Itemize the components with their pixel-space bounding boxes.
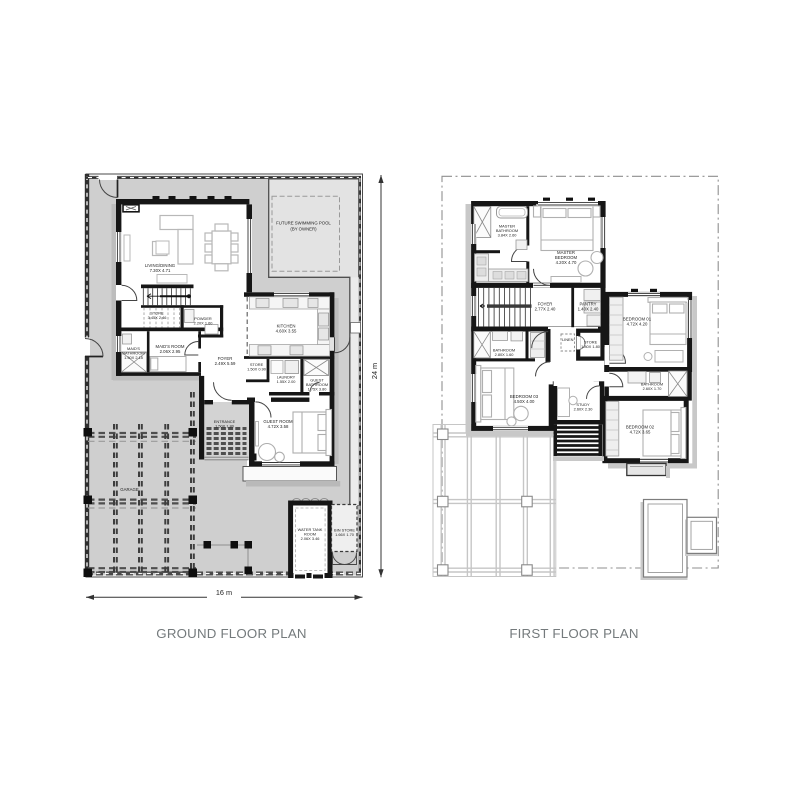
svg-text:4.72X 3.58: 4.72X 3.58 — [268, 424, 289, 429]
svg-text:1.40X 2.40: 1.40X 2.40 — [578, 307, 599, 312]
svg-text:FUTURE SWIMMING POOL: FUTURE SWIMMING POOL — [276, 221, 331, 226]
svg-text:LINEN: LINEN — [562, 337, 574, 342]
svg-text:GARAGE: GARAGE — [120, 487, 139, 492]
svg-text:GROUND FLOOR PLAN: GROUND FLOOR PLAN — [156, 626, 306, 641]
svg-text:4.72X 3.65: 4.72X 3.65 — [630, 430, 651, 435]
svg-text:1.50X 2.15: 1.50X 2.15 — [124, 355, 143, 360]
svg-text:1.66X 1.70: 1.66X 1.70 — [335, 532, 355, 537]
svg-text:2.49X 5.59: 2.49X 5.59 — [215, 361, 236, 366]
svg-text:4.60X 3.55: 4.60X 3.55 — [276, 329, 297, 334]
svg-text:2.06X 2.95: 2.06X 2.95 — [160, 349, 181, 354]
svg-text:4.72X 4.20: 4.72X 4.20 — [627, 322, 648, 327]
svg-text:(BY OWNER): (BY OWNER) — [290, 227, 317, 232]
svg-text:7.30X 4.71: 7.30X 4.71 — [150, 268, 171, 273]
svg-text:2.60X 1.70: 2.60X 1.70 — [643, 386, 663, 391]
svg-text:2.77X 2.40: 2.77X 2.40 — [535, 307, 556, 312]
svg-text:3.45X 2.46: 3.45X 2.46 — [148, 315, 167, 320]
svg-text:4.50X 4.00: 4.50X 4.00 — [514, 399, 535, 404]
svg-text:1.80X 1.80: 1.80X 1.80 — [581, 344, 601, 349]
svg-text:4.20X 4.70: 4.20X 4.70 — [556, 260, 577, 265]
svg-text:2.60X 2.30: 2.60X 2.30 — [574, 407, 594, 412]
svg-text:24 m: 24 m — [370, 363, 379, 379]
svg-text:2.20X 1.60: 2.20X 1.60 — [194, 321, 214, 326]
svg-text:16 m: 16 m — [216, 588, 232, 597]
svg-text:FIRST FLOOR PLAN: FIRST FLOOR PLAN — [509, 626, 638, 641]
svg-text:1.55X 2.00: 1.55X 2.00 — [277, 379, 297, 384]
svg-text:2.80X 1.60: 2.80X 1.60 — [495, 352, 515, 357]
svg-text:1.50X 0.90: 1.50X 0.90 — [247, 367, 267, 372]
svg-text:1.50X 1.80: 1.50X 1.80 — [215, 424, 235, 429]
svg-text:2.06X 3.46: 2.06X 3.46 — [301, 536, 320, 541]
svg-text:3.84X 2.60: 3.84X 2.60 — [498, 233, 518, 238]
